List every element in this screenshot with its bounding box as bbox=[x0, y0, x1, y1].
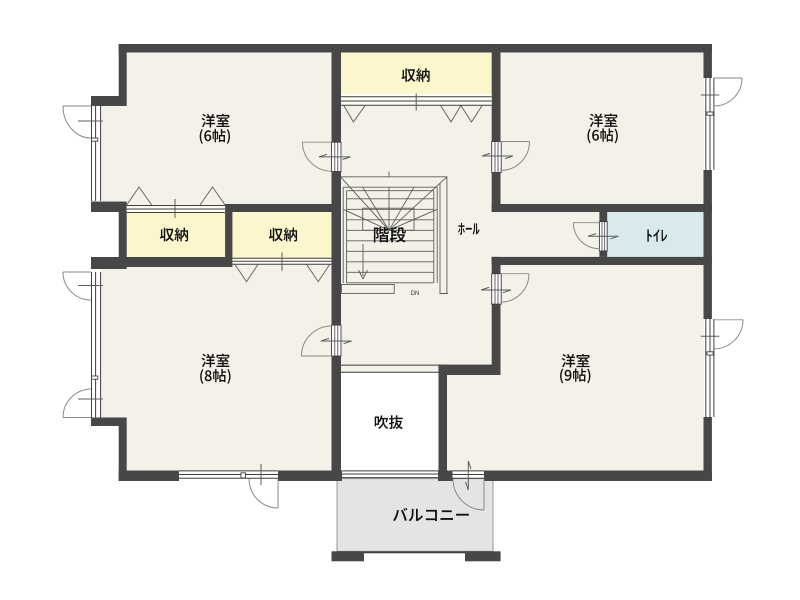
svg-text:DN: DN bbox=[411, 291, 420, 297]
